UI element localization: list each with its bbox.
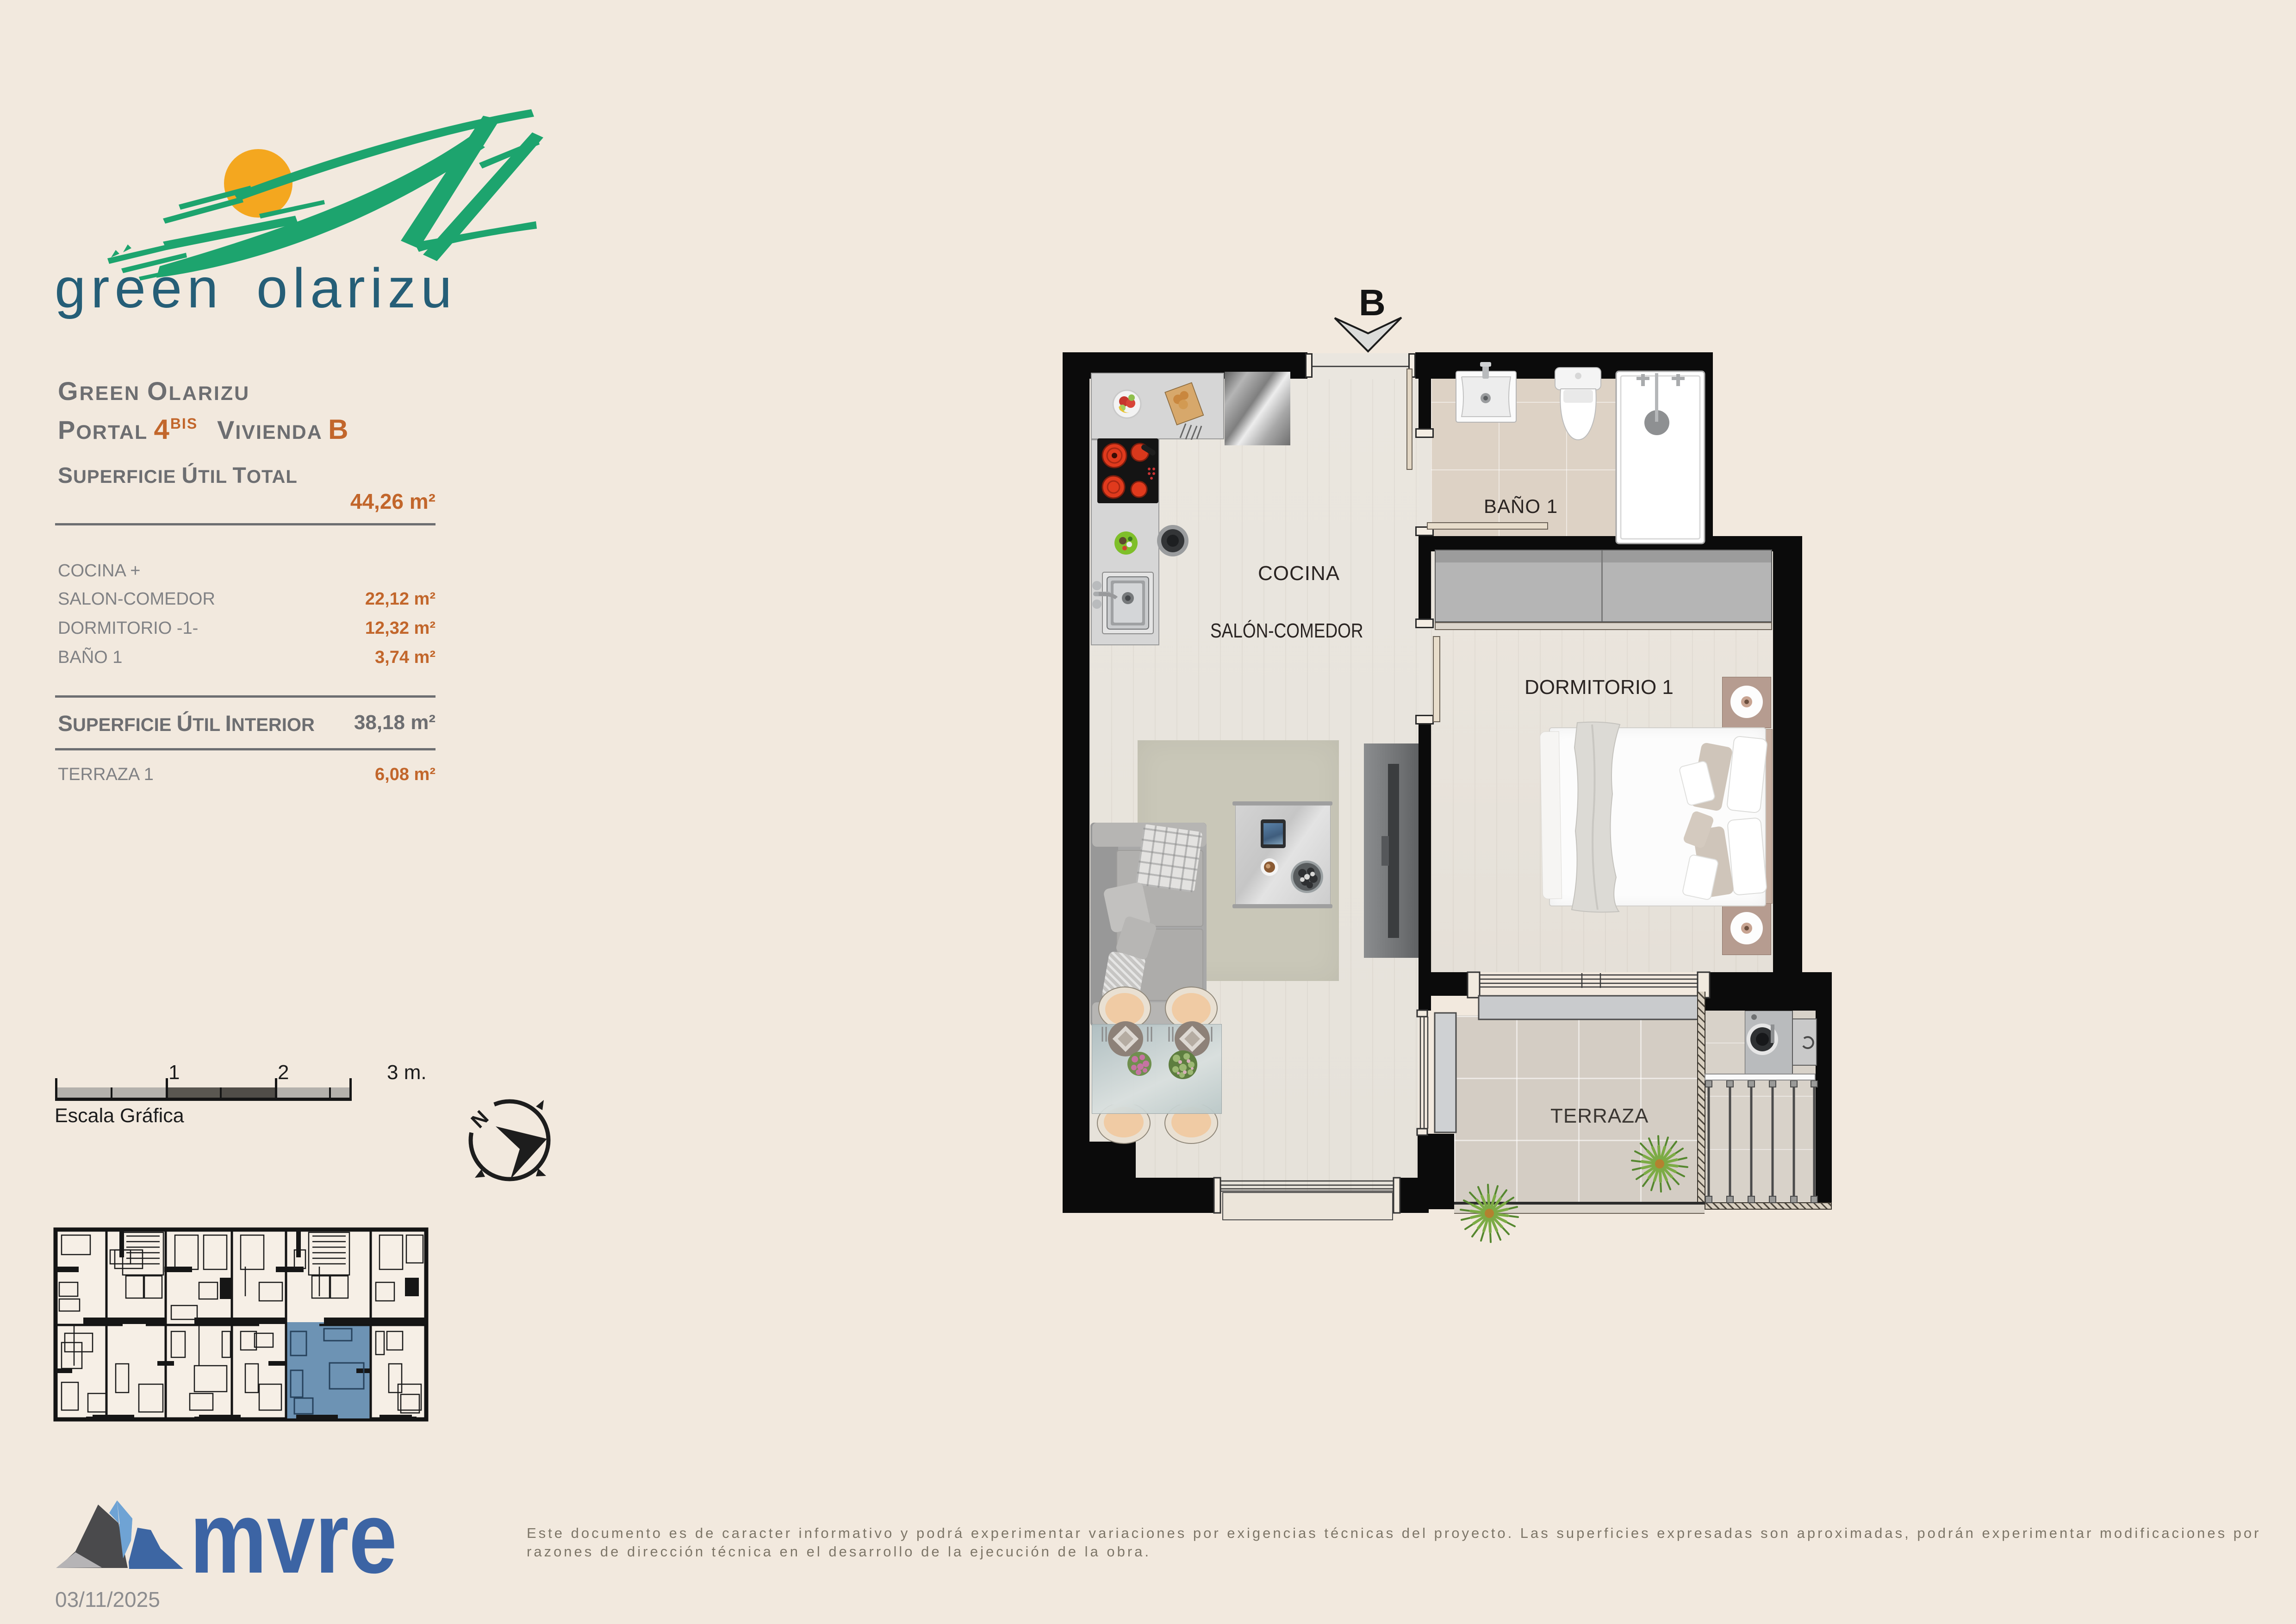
- svg-text:green olarizu: green olarizu: [55, 256, 457, 319]
- svg-text:mvre: mvre: [190, 1481, 397, 1593]
